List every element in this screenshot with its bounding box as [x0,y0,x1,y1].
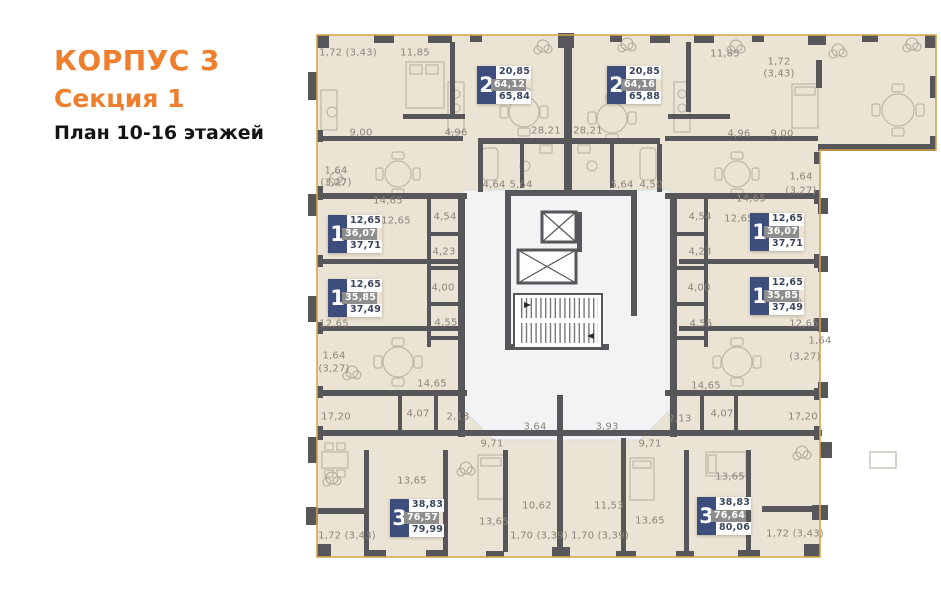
apartment-badge-2-right[interactable]: 220,8564,1665,88 [607,66,661,104]
living-area: 12,65 [347,279,382,292]
area-no-balcony: 64,16 [621,79,656,92]
apartment-badge-1-left-lower[interactable]: 112,6535,8537,49 [328,279,382,317]
area-total: 80,06 [716,522,751,535]
apartment-badge-3-left[interactable]: 338,8376,5779,99 [390,499,444,537]
living-area: 12,65 [769,277,804,290]
area-total: 37,49 [347,304,382,317]
area-no-balcony: 36,07 [764,226,799,239]
apartment-badge-2-left[interactable]: 220,8564,1265,84 [477,66,531,104]
area-total: 37,71 [347,240,382,253]
apartment-badge-3-right[interactable]: 338,8376,6480,06 [697,497,751,535]
area-no-balcony: 76,64 [711,510,746,523]
living-area: 12,65 [347,215,382,228]
living-area: 12,65 [769,213,804,226]
floor-plan-page: КОРПУС 3 Секция 1 План 10-16 этажей [0,0,941,600]
area-total: 65,84 [496,91,531,104]
living-area: 20,85 [626,66,661,79]
elevator-icon [542,212,576,242]
apartment-badge-1-right-upper[interactable]: 112,6536,0737,71 [750,213,804,251]
area-no-balcony: 35,85 [764,290,799,303]
elevator-icon [518,250,576,283]
area-total: 79,99 [409,524,444,537]
area-total: 65,88 [626,91,661,104]
living-area: 38,83 [409,499,444,512]
living-area: 20,85 [496,66,531,79]
area-no-balcony: 64,12 [491,79,526,92]
area-no-balcony: 36,07 [342,228,377,241]
area-total: 37,49 [769,302,804,315]
stairs-icon [514,294,602,348]
area-no-balcony: 76,57 [404,512,439,525]
area-total: 37,71 [769,238,804,251]
area-no-balcony: 35,85 [342,292,377,305]
living-area: 38,83 [716,497,751,510]
apartment-badge-1-right-lower[interactable]: 112,6535,8537,49 [750,277,804,315]
apartment-badge-1-left-upper[interactable]: 112,6536,0737,71 [328,215,382,253]
table-icon [870,452,896,468]
